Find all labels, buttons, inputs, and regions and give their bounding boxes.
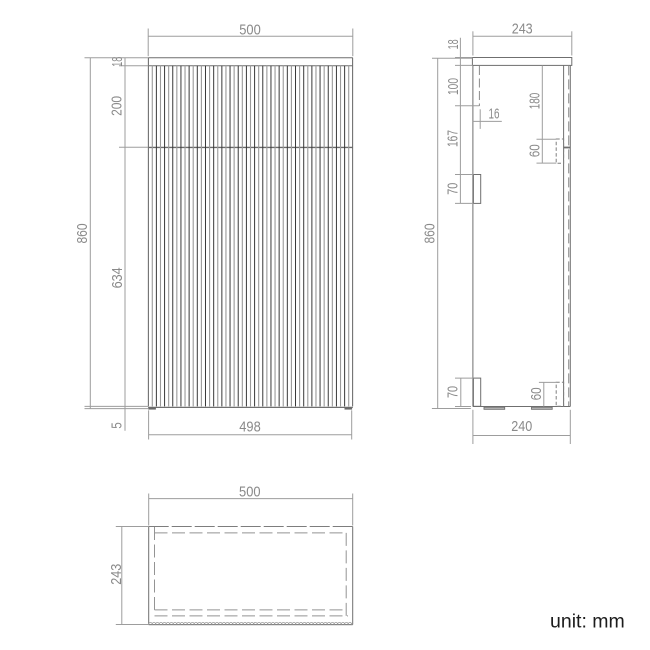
svg-text:18: 18 (109, 57, 126, 67)
svg-text:60: 60 (527, 144, 544, 157)
svg-text:5: 5 (109, 422, 126, 429)
svg-text:16: 16 (489, 105, 500, 122)
svg-text:634: 634 (109, 267, 126, 288)
svg-text:100: 100 (445, 78, 462, 95)
svg-text:60: 60 (528, 387, 545, 400)
svg-text:167: 167 (445, 130, 462, 147)
svg-text:243: 243 (512, 20, 533, 37)
svg-text:243: 243 (108, 564, 125, 585)
svg-text:70: 70 (445, 386, 462, 398)
svg-text:860: 860 (74, 224, 91, 244)
svg-text:200: 200 (109, 96, 126, 116)
svg-text:500: 500 (239, 483, 261, 500)
svg-text:498: 498 (239, 418, 261, 435)
svg-text:180: 180 (527, 93, 544, 110)
svg-text:860: 860 (421, 224, 438, 244)
svg-text:unit: mm: unit: mm (550, 611, 625, 633)
svg-text:18: 18 (445, 39, 462, 49)
svg-text:500: 500 (239, 21, 261, 38)
svg-text:240: 240 (511, 418, 532, 435)
svg-text:70: 70 (445, 183, 462, 195)
